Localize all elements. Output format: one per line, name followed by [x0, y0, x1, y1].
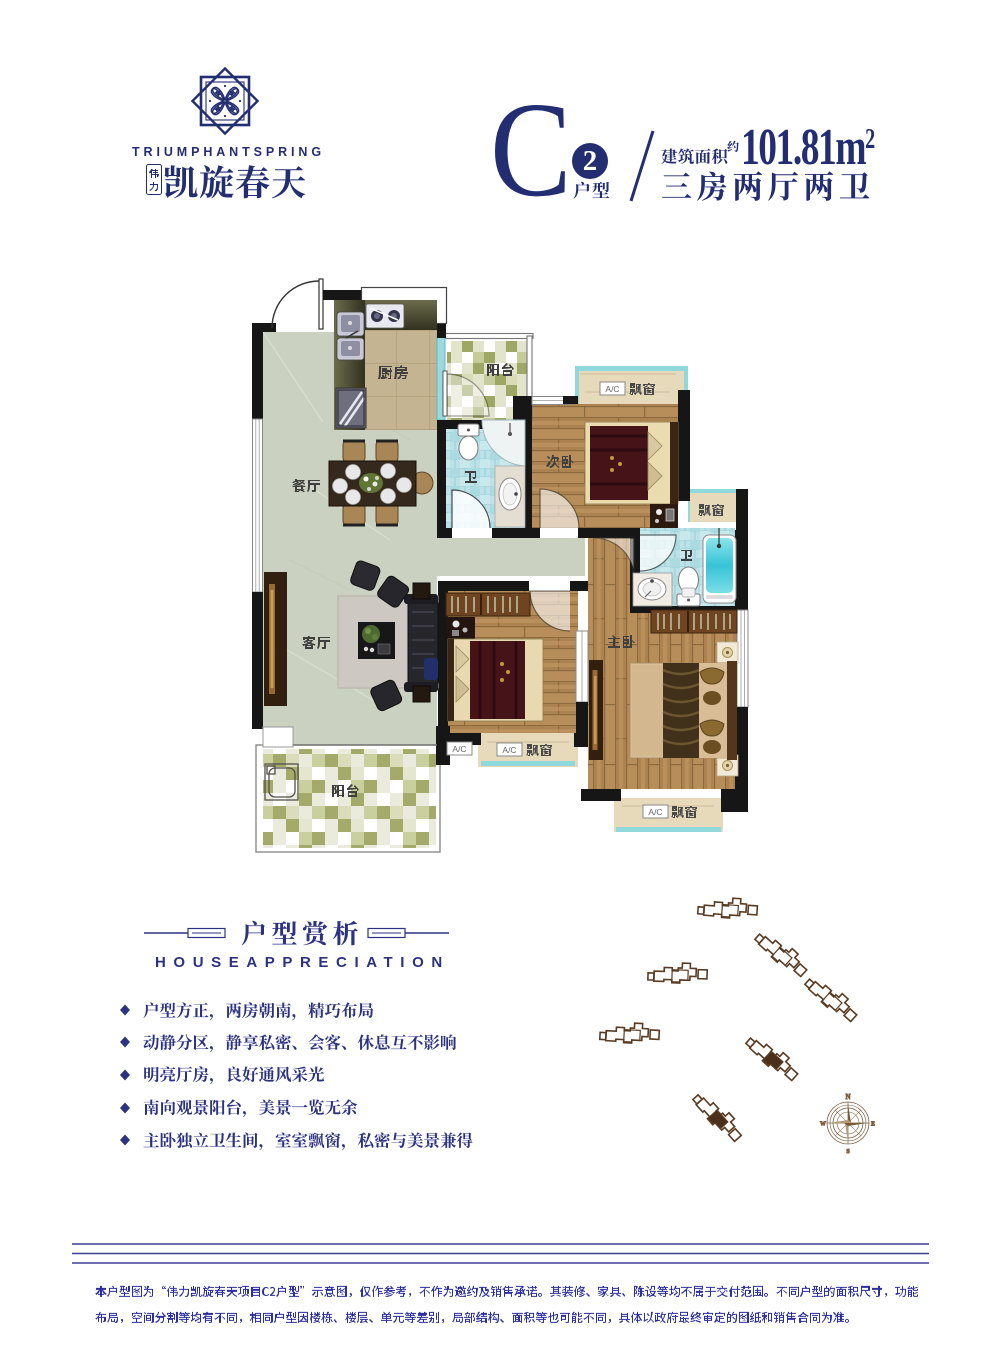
svg-text:N: N — [845, 1093, 850, 1101]
svg-text:A/C: A/C — [605, 384, 619, 394]
svg-text:A/C: A/C — [648, 807, 662, 817]
svg-text:A/C: A/C — [452, 744, 466, 754]
svg-text:W: W — [820, 1122, 826, 1128]
svg-text:S: S — [846, 1149, 849, 1155]
svg-text:A/C: A/C — [502, 745, 516, 755]
svg-text:E: E — [871, 1122, 875, 1128]
